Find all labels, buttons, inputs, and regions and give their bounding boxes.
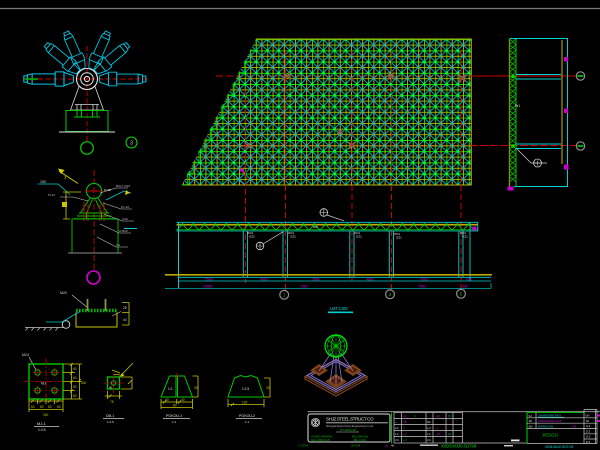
svg-text:4500: 4500 xyxy=(366,278,374,282)
svg-text:60: 60 xyxy=(48,405,52,409)
svg-text:JIEGOU: JIEGOU xyxy=(542,433,558,438)
svg-text:POKOU-1: POKOU-1 xyxy=(166,414,182,418)
svg-text:60: 60 xyxy=(73,385,77,389)
svg-text:c 4: c 4 xyxy=(395,432,399,436)
svg-text:MJ-1: MJ-1 xyxy=(37,421,47,426)
svg-text:240: 240 xyxy=(81,381,87,385)
svg-text:40: 40 xyxy=(165,398,169,402)
svg-text:60: 60 xyxy=(31,405,35,409)
svg-text:60: 60 xyxy=(73,394,77,398)
svg-text:600: 600 xyxy=(313,225,318,229)
svg-text:BOLT M24: BOLT M24 xyxy=(116,184,131,188)
svg-text:7500: 7500 xyxy=(420,278,428,282)
svg-text:3: 3 xyxy=(130,141,133,147)
svg-text:75: 75 xyxy=(110,400,114,404)
svg-text:150: 150 xyxy=(40,180,46,184)
svg-text:24000: 24000 xyxy=(203,285,213,289)
svg-text:D180: D180 xyxy=(104,188,112,192)
svg-text:G Z: G Z xyxy=(586,424,591,428)
svg-text:240: 240 xyxy=(43,413,49,417)
svg-text:DB-1: DB-1 xyxy=(106,414,114,418)
svg-text:900: 900 xyxy=(466,278,472,282)
svg-text:1:1: 1:1 xyxy=(172,420,177,424)
svg-text:d 4: d 4 xyxy=(395,438,399,442)
svg-text:20: 20 xyxy=(194,386,198,390)
svg-text:7500: 7500 xyxy=(312,278,320,282)
svg-text:XXDS WJJG SGT-04: XXDS WJJG SGT-04 xyxy=(441,444,477,449)
svg-text:POKOU-2: POKOU-2 xyxy=(239,414,255,418)
svg-text:60: 60 xyxy=(73,367,77,371)
svg-text:M24: M24 xyxy=(22,353,29,357)
svg-text:GZ1: GZ1 xyxy=(249,234,255,238)
svg-text:I I: I I xyxy=(414,414,416,418)
svg-text:a1: a1 xyxy=(385,444,389,448)
svg-text:1.2504: 1.2504 xyxy=(299,444,309,448)
svg-text:W1: W1 xyxy=(515,104,520,108)
svg-text:GH: GH xyxy=(586,414,590,418)
svg-text:900: 900 xyxy=(462,285,468,289)
svg-text:HJ500: HJ500 xyxy=(119,229,128,233)
svg-text:60: 60 xyxy=(73,376,77,380)
svg-text:2-2: 2-2 xyxy=(116,243,121,247)
svg-text:--: -- xyxy=(395,421,397,424)
svg-text:1:2.5: 1:2.5 xyxy=(107,420,114,424)
svg-text:SJH 2004-015: SJH 2004-015 xyxy=(311,438,330,442)
svg-text:7500: 7500 xyxy=(418,285,426,289)
svg-text:GZ1: GZ1 xyxy=(396,235,402,239)
svg-text:M20: M20 xyxy=(60,291,67,295)
svg-text:a b: a b xyxy=(395,426,399,430)
svg-text:1:2: 1:2 xyxy=(168,387,173,391)
svg-text:a 4: a 4 xyxy=(427,426,431,430)
svg-text:24-004: 24-004 xyxy=(351,444,361,448)
svg-text:HQ: HQ xyxy=(436,414,440,418)
svg-text:WANGJUN: WANGJUN xyxy=(538,424,553,428)
svg-text:GZ1: GZ1 xyxy=(290,234,296,238)
svg-text:LMT 1:200: LMT 1:200 xyxy=(330,306,348,311)
svg-text:4.8: 4.8 xyxy=(572,424,577,428)
svg-text:1:2.5: 1:2.5 xyxy=(38,428,46,432)
svg-text:BL 1:100: BL 1:100 xyxy=(354,438,366,442)
svg-text:s a: s a xyxy=(403,433,407,436)
svg-text:40: 40 xyxy=(123,318,127,322)
svg-text:1:2.5: 1:2.5 xyxy=(242,387,249,391)
svg-text:D Z: D Z xyxy=(586,429,591,433)
svg-text:c 4: c 4 xyxy=(427,432,431,436)
svg-text:D Z: D Z xyxy=(586,440,591,444)
svg-text:7500: 7500 xyxy=(300,285,308,289)
svg-text:MJ: MJ xyxy=(41,382,46,386)
svg-text:40: 40 xyxy=(181,398,185,402)
svg-text:GZ1: GZ1 xyxy=(356,234,362,238)
svg-text:4n: 4n xyxy=(391,444,395,448)
svg-text:TH: TH xyxy=(586,419,590,423)
svg-text:SH: SH xyxy=(529,425,533,429)
svg-text:80: 80 xyxy=(173,404,177,408)
svg-text:60: 60 xyxy=(40,405,44,409)
svg-text:SHJZ STEEL STRUCT CO: SHJZ STEEL STRUCT CO xyxy=(326,417,374,422)
svg-text:bl4: bl4 xyxy=(427,420,431,424)
svg-text:C30: C30 xyxy=(122,217,128,221)
svg-text:ZHANGWEI 04.8: ZHANGWEI 04.8 xyxy=(538,414,561,418)
svg-text:2004.08.20 SGT-04: 2004.08.20 SGT-04 xyxy=(545,445,573,449)
svg-text:vU: vU xyxy=(448,432,451,436)
svg-text:HT-2004-18: HT-2004-18 xyxy=(340,428,356,432)
svg-text:4500: 4500 xyxy=(260,278,268,282)
svg-text:LIMINGHUA 04.8: LIMINGHUA 04.8 xyxy=(538,419,562,423)
svg-text:GZ1: GZ1 xyxy=(462,234,468,238)
svg-text:PL-20: PL-20 xyxy=(121,205,129,209)
svg-text:60: 60 xyxy=(57,405,61,409)
svg-text:20: 20 xyxy=(266,386,270,390)
svg-text:JD: JD xyxy=(529,419,532,423)
svg-text:AB: AB xyxy=(403,420,407,424)
svg-text:e 4: e 4 xyxy=(403,438,407,442)
svg-text:25: 25 xyxy=(123,306,127,310)
svg-text:7500: 7500 xyxy=(205,278,213,282)
svg-text:1:1: 1:1 xyxy=(245,420,250,424)
svg-text:d 4: d 4 xyxy=(427,438,431,442)
svg-text:40: 40 xyxy=(109,386,113,390)
svg-text:HQ: HQ xyxy=(403,414,407,418)
svg-text:PL16: PL16 xyxy=(48,193,55,197)
svg-text:a?1: a?1 xyxy=(436,432,441,436)
svg-text:P 4: P 4 xyxy=(448,414,452,418)
svg-text:G Z: G Z xyxy=(586,435,591,439)
svg-text:m: m xyxy=(436,427,438,430)
svg-text:120: 120 xyxy=(242,401,248,405)
